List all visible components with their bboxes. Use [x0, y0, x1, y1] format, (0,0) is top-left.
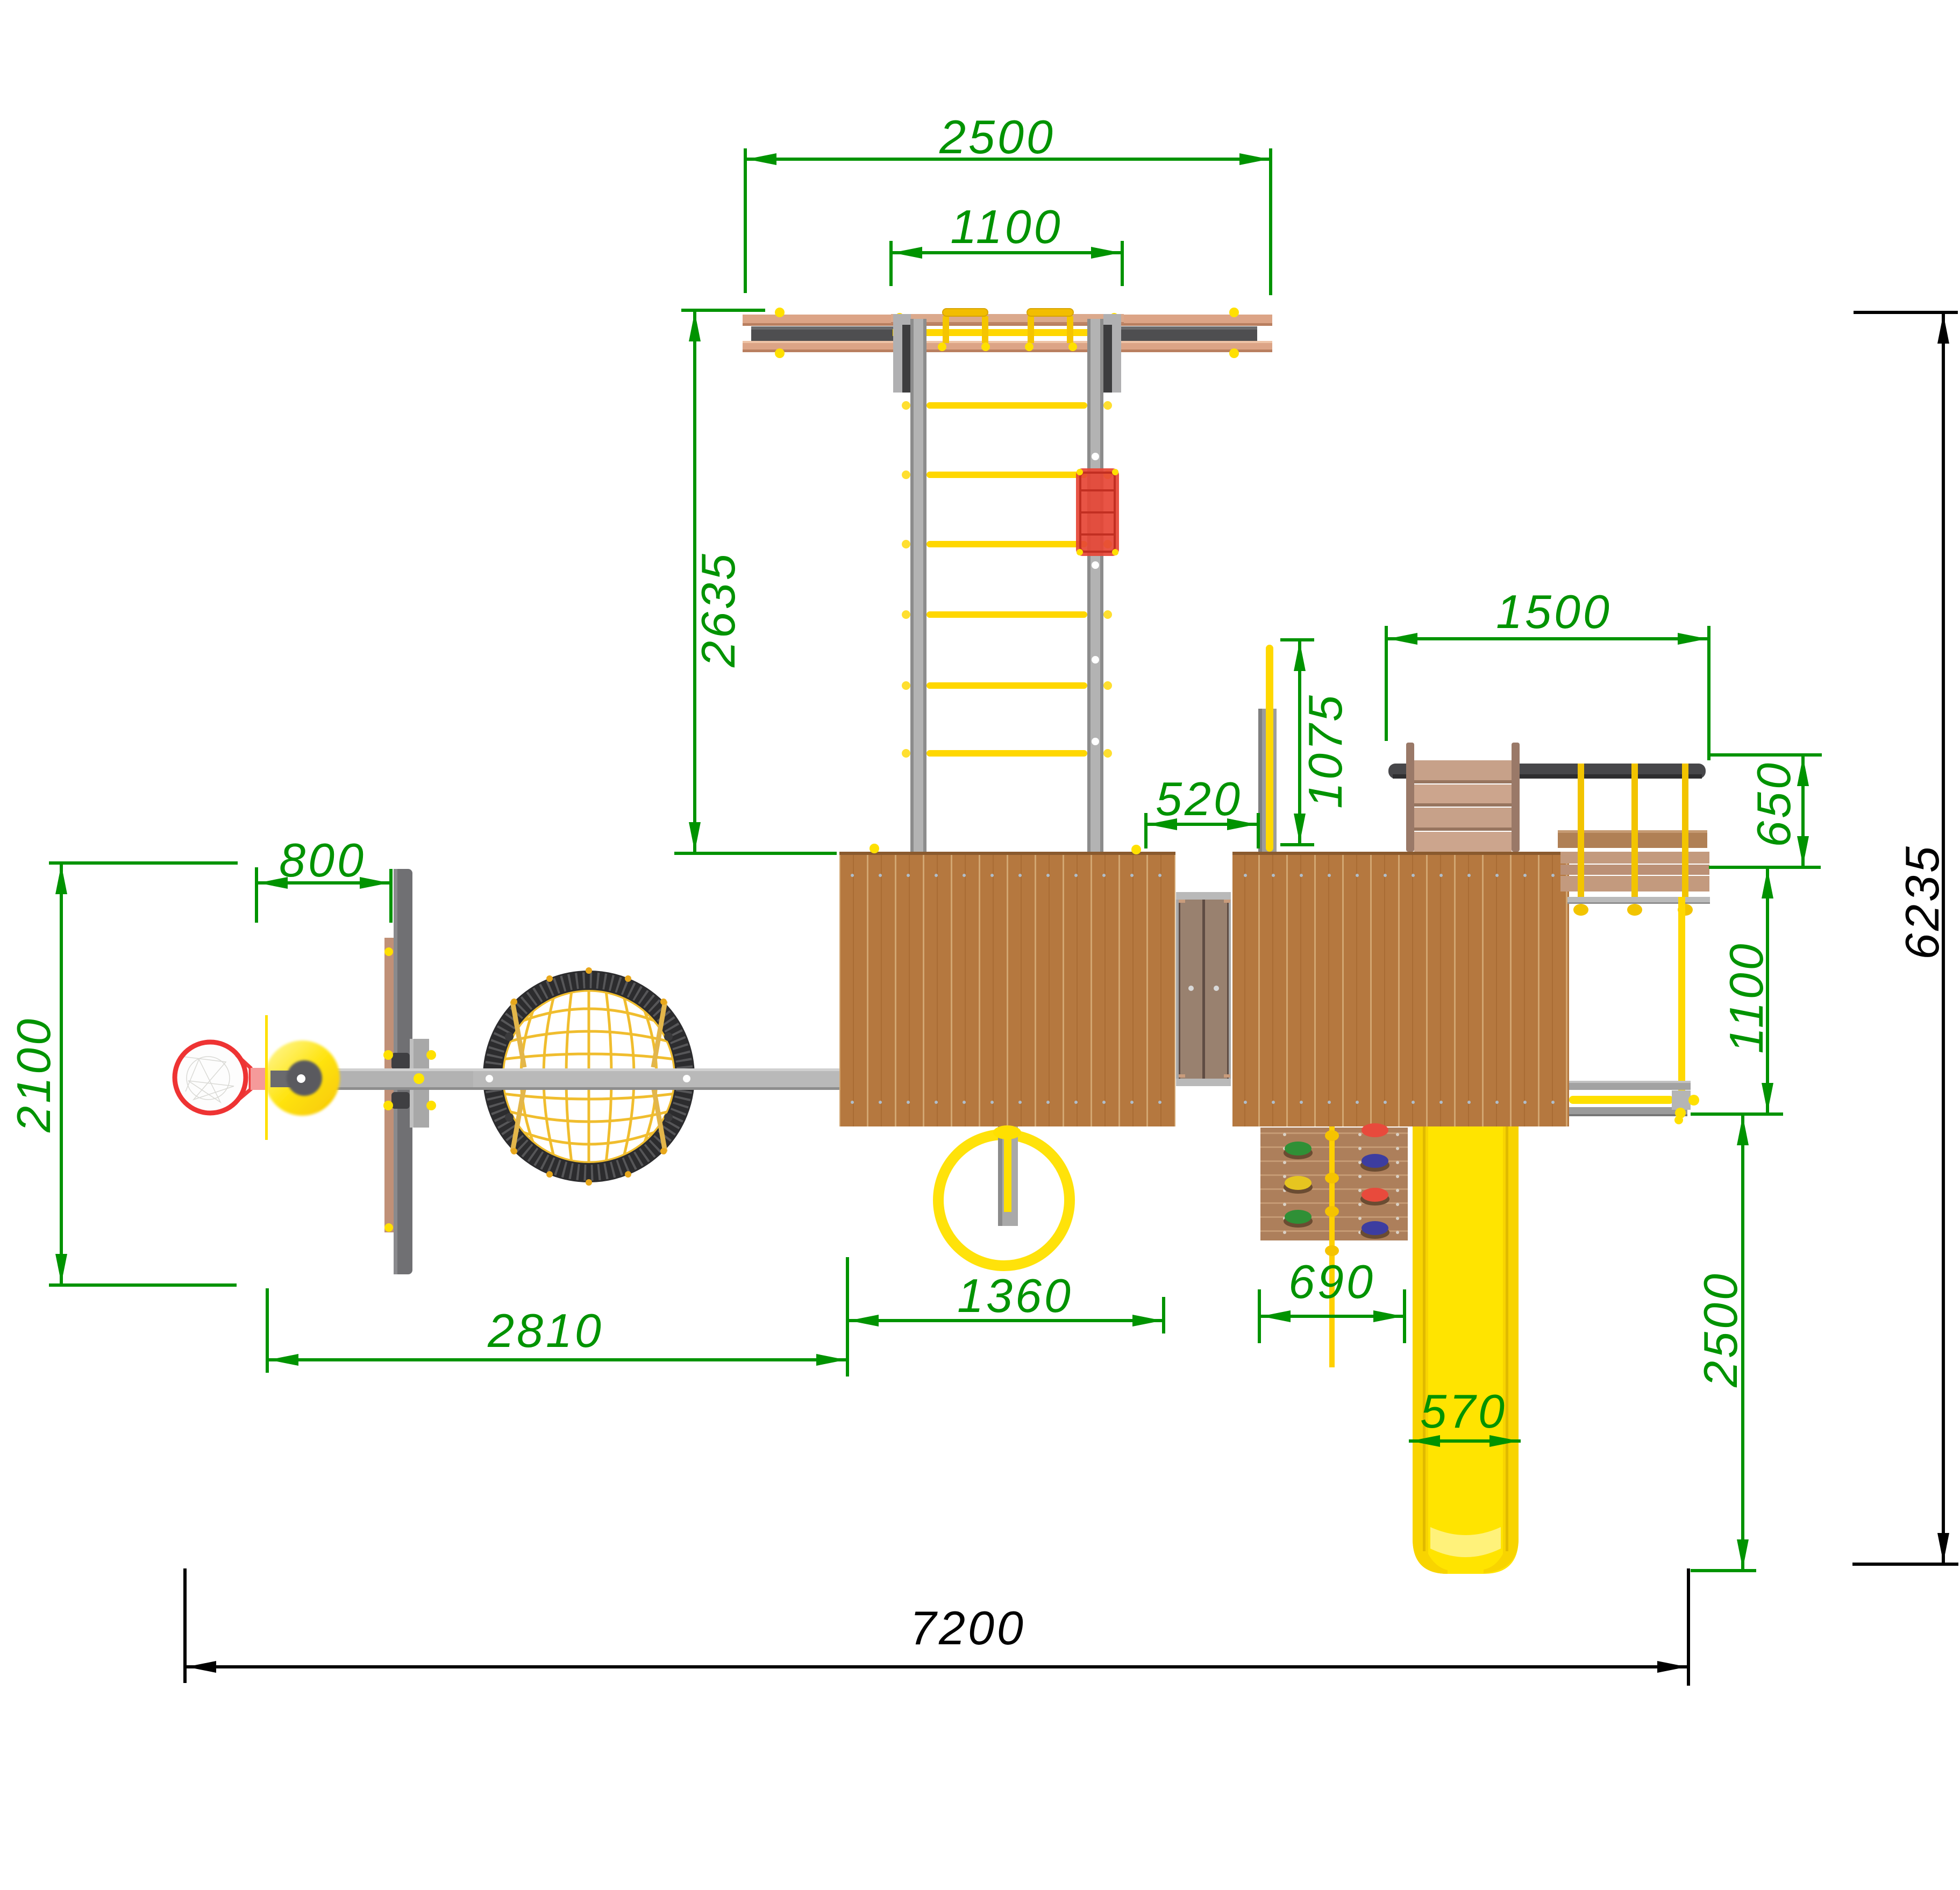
svg-text:690: 690 [1288, 1255, 1375, 1308]
svg-text:1100: 1100 [950, 200, 1063, 253]
svg-text:2635: 2635 [692, 551, 745, 668]
svg-text:6235: 6235 [1895, 844, 1949, 960]
svg-text:570: 570 [1420, 1385, 1507, 1438]
svg-text:2810: 2810 [487, 1304, 604, 1357]
svg-text:1100: 1100 [1720, 941, 1773, 1053]
svg-text:1075: 1075 [1299, 693, 1352, 809]
svg-text:2500: 2500 [1694, 1271, 1747, 1388]
svg-text:520: 520 [1156, 772, 1243, 825]
svg-text:1360: 1360 [957, 1269, 1073, 1322]
svg-text:7200: 7200 [910, 1601, 1026, 1654]
svg-text:800: 800 [279, 833, 366, 887]
svg-text:1500: 1500 [1496, 585, 1612, 638]
svg-text:2100: 2100 [7, 1016, 60, 1133]
svg-text:2500: 2500 [939, 110, 1056, 163]
svg-text:650: 650 [1747, 760, 1800, 847]
